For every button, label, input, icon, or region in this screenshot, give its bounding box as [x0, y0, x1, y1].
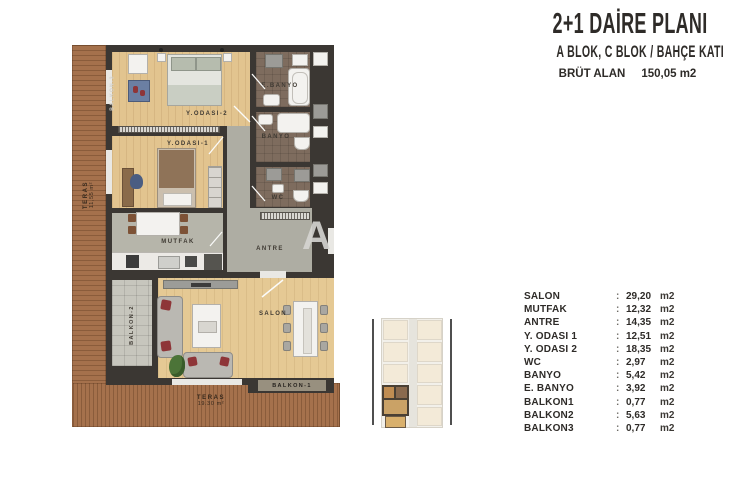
row-unit: m2: [660, 383, 674, 394]
bath-cabinet: [292, 54, 308, 66]
row-unit: m2: [660, 291, 674, 302]
gross-area-value: 150,05 m2: [641, 68, 696, 80]
coffee-table-shelf: [198, 321, 217, 333]
single-bed: [157, 148, 196, 208]
key-plan: [370, 313, 454, 431]
living-label: SALON: [256, 311, 290, 317]
cushion: [187, 356, 197, 366]
table-row: E. BANYO:3,92m2: [524, 382, 700, 395]
table-row: BALKON2:5,63m2: [524, 409, 700, 422]
row-name: SALON: [524, 291, 616, 302]
terrace-left-name: TERAS: [83, 181, 89, 209]
dining-table: [293, 301, 318, 357]
sofa-left: [157, 296, 183, 358]
kitchen-chair: [128, 214, 136, 222]
row-unit: m2: [660, 423, 674, 434]
row-colon: :: [616, 331, 626, 342]
row-unit: m2: [660, 370, 674, 381]
site-boundary-line: [450, 319, 452, 425]
row-colon: :: [616, 370, 626, 381]
tv-icon: [191, 283, 211, 287]
table-runner: [303, 308, 312, 354]
page-title: 2+1 DAİRE PLANI: [505, 8, 750, 40]
row-colon: :: [616, 423, 626, 434]
balcony3-strip: BALKON-3: [106, 63, 119, 123]
rug-item: [140, 90, 145, 96]
bath-label: BANYO: [258, 134, 294, 140]
bedroom1-label: Y.ODASI-1: [158, 141, 218, 147]
kitchen-chair: [180, 214, 188, 222]
area-table: SALON:29,20m2 MUTFAK:12,32m2 ANTRE:14,35…: [524, 290, 700, 435]
row-colon: :: [616, 397, 626, 408]
key-corridor: [409, 319, 417, 427]
key-unit: [417, 407, 442, 426]
balcony2-label-wrap: BALKON-2: [118, 300, 146, 350]
table-row: WC:2,97m2: [524, 356, 700, 369]
wardrobe: [128, 54, 148, 74]
key-highlight-room: [384, 387, 394, 398]
row-name: BALKON1: [524, 397, 616, 408]
terrace-left-area: 11,55 m²: [89, 181, 95, 209]
tv-unit: [163, 280, 238, 289]
pillow: [171, 57, 196, 71]
cushion: [160, 340, 171, 351]
blanket: [168, 85, 221, 105]
balcony3-label: BALKON-3: [110, 75, 116, 110]
row-value: 12,51: [626, 331, 660, 342]
row-colon: :: [616, 317, 626, 328]
row-value: 0,77: [626, 423, 660, 434]
stove-icon: [126, 255, 139, 268]
nightstand: [157, 53, 166, 62]
wall-sconce-icon: [159, 48, 163, 52]
floor-plan-page: 2+1 DAİRE PLANI A BLOK, C BLOK / BAHÇE K…: [0, 0, 750, 500]
row-value: 5,63: [626, 410, 660, 421]
terrace-left-label-wrap: TERAS 11,55 m²: [64, 170, 114, 220]
header: 2+1 DAİRE PLANI A BLOK, C BLOK / BAHÇE K…: [505, 8, 750, 80]
washbasin: [272, 184, 284, 193]
row-value: 14,35: [626, 317, 660, 328]
row-name: Y. ODASI 1: [524, 331, 616, 342]
terrace-slider-window: [172, 379, 242, 385]
table-row: Y. ODASI 1:12,51m2: [524, 330, 700, 343]
closet: [313, 126, 328, 138]
row-colon: :: [616, 357, 626, 368]
row-name: Y. ODASI 2: [524, 344, 616, 355]
wall-sconce-icon: [220, 48, 224, 52]
table-row: BALKON1:0,77m2: [524, 396, 700, 409]
row-colon: :: [616, 383, 626, 394]
key-unit-highlight: [382, 385, 409, 416]
terrace-bottom-area: 19.30 m²: [188, 401, 234, 407]
small-appliance-icon: [185, 256, 197, 267]
sink-icon: [158, 256, 180, 269]
row-name: MUTFAK: [524, 304, 616, 315]
row-value: 18,35: [626, 344, 660, 355]
corridor-floor: [227, 126, 250, 208]
key-highlight-room: [384, 400, 407, 414]
kitchen-chair: [128, 226, 136, 234]
row-colon: :: [616, 410, 626, 421]
balcony1-strip: BALKON-1: [258, 380, 326, 391]
terrace-bottom-label-wrap: TERAS 19.30 m²: [188, 395, 234, 407]
closet: [313, 182, 328, 194]
cushion: [219, 356, 230, 367]
row-name: BANYO: [524, 370, 616, 381]
kitchen-table: [136, 212, 180, 236]
washing-machine-icon: [266, 168, 282, 181]
dining-chair: [283, 341, 291, 351]
washbasin: [258, 114, 273, 125]
row-name: BALKON3: [524, 423, 616, 434]
row-value: 5,42: [626, 370, 660, 381]
balcony2-label: BALKON-2: [129, 305, 135, 345]
row-value: 0,77: [626, 397, 660, 408]
salon-door-opening: [260, 271, 286, 278]
bedroom2-label: Y.ODASI-2: [177, 111, 237, 117]
table-row: Y. ODASI 2:18,35m2: [524, 343, 700, 356]
row-colon: :: [616, 304, 626, 315]
key-unit: [417, 385, 442, 405]
page-subtitle: A BLOK, C BLOK / BAHÇE KATI: [505, 42, 750, 62]
kitchen-label: MUTFAK: [158, 239, 198, 245]
row-unit: m2: [660, 357, 674, 368]
row-unit: m2: [660, 397, 674, 408]
nightstand: [223, 53, 232, 62]
watermark-letter: A: [302, 216, 331, 256]
cushion: [160, 299, 172, 311]
key-unit: [417, 320, 442, 340]
page-title-text: 2+1 DAİRE PLANI: [553, 8, 708, 40]
row-value: 3,92: [626, 383, 660, 394]
gross-area-label: BRÜT ALAN: [559, 68, 626, 80]
wc-label: WC: [266, 195, 290, 201]
desk-chair: [130, 174, 143, 189]
site-boundary-line: [372, 319, 374, 425]
row-unit: m2: [660, 304, 674, 315]
key-unit: [417, 342, 442, 362]
plant: [169, 355, 185, 377]
table-row: SALON:29,20m2: [524, 290, 700, 303]
coffee-table: [192, 304, 221, 348]
wardrobe: [208, 166, 222, 208]
key-unit-highlight-balcony: [385, 416, 406, 428]
row-colon: :: [616, 344, 626, 355]
terrace-deck-left: [72, 45, 106, 427]
rug: [128, 80, 150, 102]
table-row: ANTRE:14,35m2: [524, 316, 700, 329]
key-building: [381, 318, 443, 428]
shower-tub: [277, 113, 310, 133]
sofa-bottom: [183, 352, 233, 378]
dining-chair: [320, 341, 328, 351]
key-highlight-room: [396, 387, 407, 398]
toilet: [294, 137, 310, 150]
key-unit: [383, 364, 408, 383]
row-name: E. BANYO: [524, 383, 616, 394]
row-value: 2,97: [626, 357, 660, 368]
closet: [313, 52, 328, 66]
blanket: [159, 150, 194, 188]
row-name: ANTRE: [524, 317, 616, 328]
closet: [313, 104, 328, 119]
toilet: [293, 190, 309, 202]
kitchen-counter: [112, 252, 223, 270]
row-value: 29,20: [626, 291, 660, 302]
table-row: MUTFAK:12,32m2: [524, 303, 700, 316]
table-row: BALKON3:0,77m2: [524, 422, 700, 435]
closet: [313, 164, 328, 177]
pillow: [163, 193, 192, 206]
table-row: BANYO:5,42m2: [524, 369, 700, 382]
row-unit: m2: [660, 317, 674, 328]
dining-chair: [283, 323, 291, 333]
page-subtitle-text: A BLOK, C BLOK / BAHÇE KATI: [556, 42, 724, 62]
dining-chair: [320, 323, 328, 333]
kitchen-chair: [180, 226, 188, 234]
dining-chair: [320, 305, 328, 315]
row-name: BALKON2: [524, 410, 616, 421]
row-colon: :: [616, 291, 626, 302]
rug-item: [133, 86, 138, 93]
pillow: [196, 57, 221, 71]
row-unit: m2: [660, 344, 674, 355]
row-value: 12,32: [626, 304, 660, 315]
ensuite-bath-label: E.BANYO: [257, 83, 303, 89]
washing-machine-icon: [265, 54, 283, 68]
washbasin: [263, 94, 280, 106]
fridge-icon: [204, 254, 222, 270]
radiator: [118, 126, 220, 133]
row-unit: m2: [660, 410, 674, 421]
key-unit: [383, 342, 408, 362]
key-unit: [417, 364, 442, 383]
balcony1-label: BALKON-1: [272, 383, 312, 389]
gross-area: BRÜT ALAN 150,05 m2: [505, 68, 750, 80]
hall-label: ANTRE: [252, 246, 288, 252]
double-bed: [167, 54, 222, 106]
cabinet: [294, 169, 310, 182]
key-unit: [383, 320, 408, 340]
row-unit: m2: [660, 331, 674, 342]
row-name: WC: [524, 357, 616, 368]
